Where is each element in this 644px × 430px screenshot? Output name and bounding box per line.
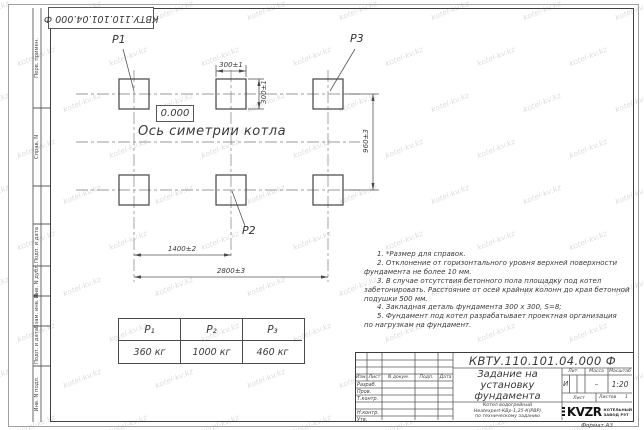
load-table-header: P₁	[119, 319, 181, 341]
dim-full-span: 2800±3	[201, 267, 261, 275]
pad-label-p2: P2	[242, 224, 256, 237]
top-designation-text: КВТУ.110.101.04.000 Ф	[44, 13, 159, 24]
note-line: 1. *Размер для справок.	[364, 250, 634, 259]
manufacturer-logo-cell: KVZR КОТЕЛЬНЫЙ ЗАВОД РЭТ	[562, 403, 632, 420]
scale-value: 1:20	[608, 375, 632, 393]
mass-value: –	[585, 375, 608, 393]
col-doc: N докум.	[382, 374, 415, 381]
note-line: забетонировать. Расстояние от осей крайн…	[364, 286, 634, 295]
col-list: Лист	[367, 374, 382, 381]
row-prov: Пров.	[357, 389, 371, 395]
margin-field-sprav-n: Справ. N	[34, 135, 40, 159]
margin-field-podp-data-2: Подп. и дата	[34, 328, 40, 364]
col-izm: Изм.	[356, 374, 367, 381]
load-table-value: 360 кг	[119, 341, 181, 363]
row-utv: Утв.	[357, 417, 367, 423]
notes-block: 1. *Размер для справок. 2. Отклонение от…	[364, 250, 634, 330]
drawing-sheet: kotel-kv.kzkotel-kv.kzkotel-kv.kzkotel-k…	[0, 0, 644, 430]
dim-mid-span: 1400±2	[152, 245, 212, 253]
note-line: 2. Отклонение от горизонтального уровня …	[364, 259, 634, 268]
load-table-value: 1000 кг	[181, 341, 243, 363]
company-name: КОТЕЛЬНЫЙ ЗАВОД РЭТ	[603, 407, 632, 417]
sheets-label: Листов	[599, 395, 616, 400]
sheet-label: Лист	[562, 394, 596, 402]
col-data: Дата	[438, 374, 453, 381]
row-razrab: Разраб.	[357, 382, 376, 388]
dim-height-top: 300±1	[260, 69, 268, 115]
axis-of-symmetry-label: Ось симетрии котла	[138, 124, 286, 139]
product-line: по техническому заданию	[453, 414, 562, 420]
col-podp: Подп.	[415, 374, 438, 381]
margin-field-inv-podl: Инв. N подл.	[34, 377, 40, 412]
product-name-cell: Котел водогрейный Heatexpert-КВр-1,25-К(…	[453, 403, 562, 420]
format-label: Формат А3	[558, 421, 636, 430]
note-line: по нагрузкам на фундамент.	[364, 321, 634, 330]
pad-label-p1: P1	[112, 33, 126, 46]
company-line: КОТЕЛЬНЫЙ	[603, 407, 632, 412]
row-tkontr: Т.контр.	[357, 396, 378, 402]
company-line: ЗАВОД РЭТ	[603, 412, 632, 417]
load-table-header: P₃	[243, 319, 302, 341]
margin-field-vzam-inv: Взам. инв. N	[34, 294, 40, 328]
row-nkontr: Н.контр.	[357, 410, 379, 416]
load-table-header: P₂	[181, 319, 243, 341]
sheets-value: 1	[625, 395, 628, 400]
top-designation-stamp: КВТУ.110.101.04.000 Ф	[48, 7, 154, 29]
load-table-value: 460 кг	[243, 341, 302, 363]
pad-label-p3: P3	[350, 32, 364, 45]
elevation-mark: 0.000	[156, 105, 194, 122]
logo-stripes-icon	[562, 407, 565, 417]
lit-value: И	[562, 375, 570, 393]
mass-label: Масса	[585, 368, 608, 375]
note-line: 3. В случае отсутствия бетонного пола пл…	[364, 277, 634, 286]
load-table: P₁ P₂ P₃ 360 кг 1000 кг 460 кг	[118, 318, 305, 364]
note-line: фундамента не более 10 мм.	[364, 268, 634, 277]
document-title: Задание на установку фундамента	[453, 368, 562, 402]
note-line: 4. Закладная деталь фундамента 300 х 300…	[364, 303, 634, 312]
margin-field-podp-data-1: Подп. и дата	[34, 227, 40, 263]
title-block: Изм. Лист N докум. Подп. Дата Разраб. Пр…	[355, 352, 634, 422]
dim-vertical-span: 960±3	[362, 118, 370, 164]
note-line: подушки 500 мм.	[364, 295, 634, 304]
scale-label: Масштаб	[608, 368, 632, 375]
note-line: 5. Фундамент под котел разрабатывает про…	[364, 312, 634, 321]
lit-label: Лит.	[562, 368, 585, 375]
dim-width-top: 300±1	[206, 61, 256, 69]
logo-text: KVZR	[567, 405, 602, 419]
title-block-designation: КВТУ.110.101.04.000 Ф	[453, 353, 632, 368]
margin-field-perv-primen: Перв. примен.	[34, 38, 40, 78]
